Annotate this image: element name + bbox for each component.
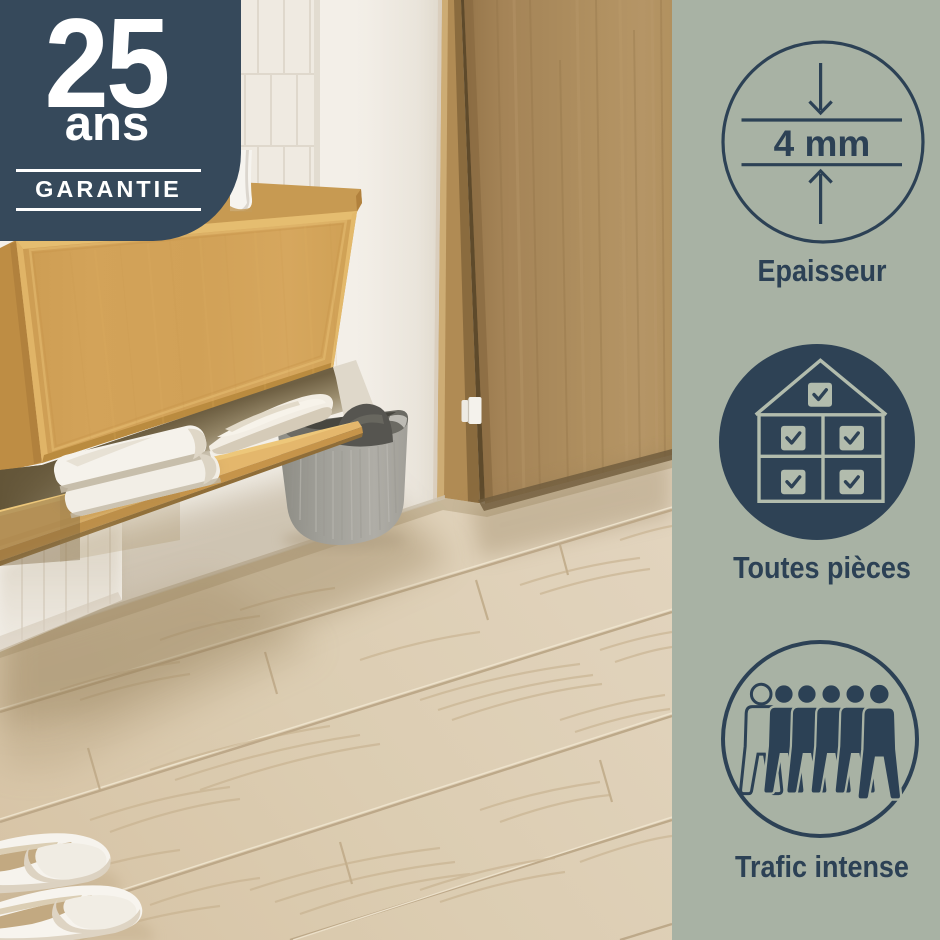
svg-text:4 mm: 4 mm (774, 123, 871, 164)
